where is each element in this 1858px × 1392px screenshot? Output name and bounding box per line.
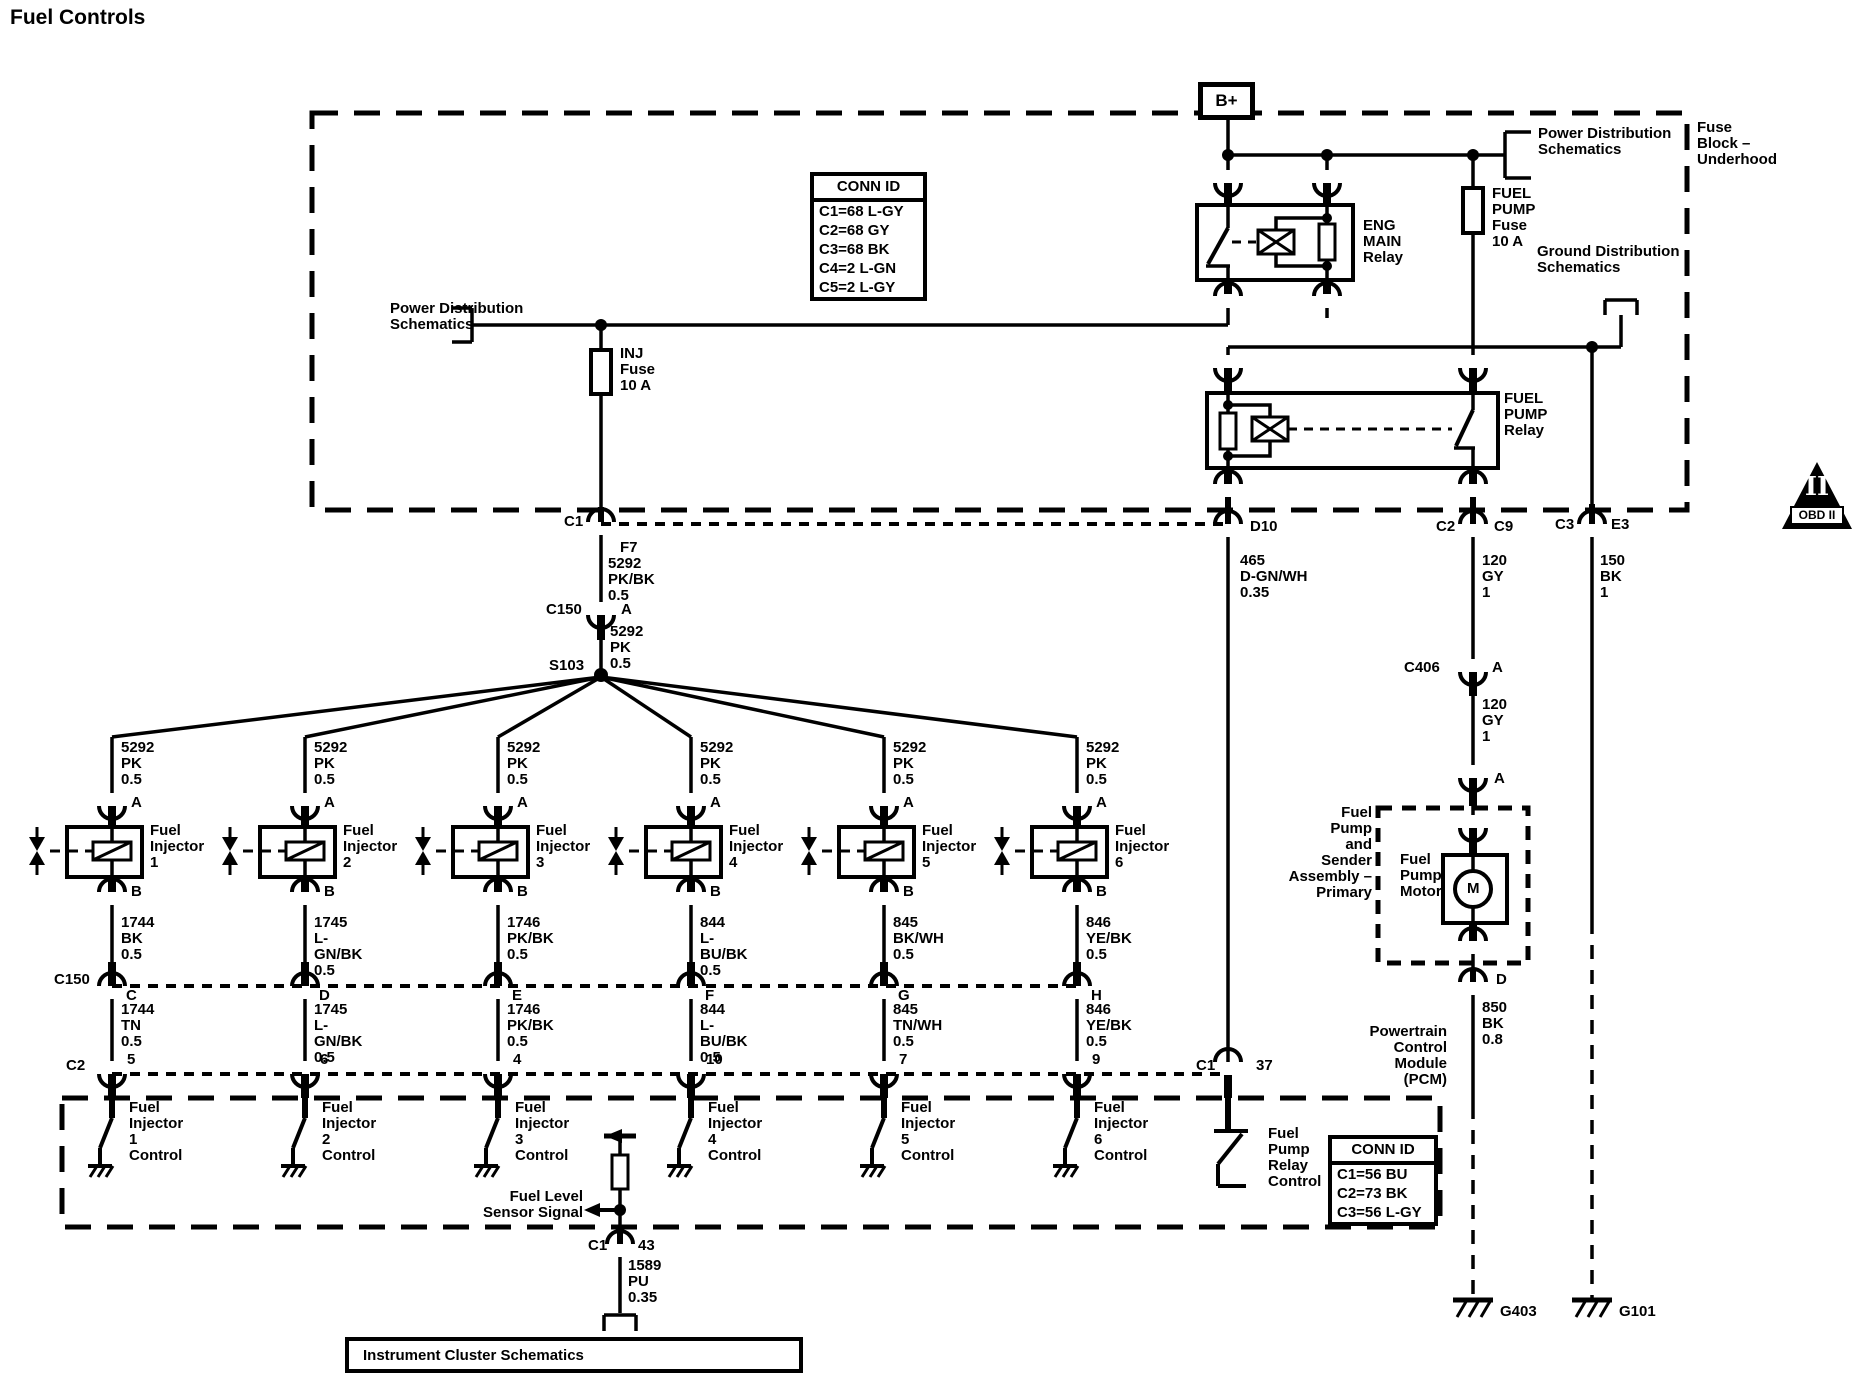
wire-120-label: 120 GY 1	[1482, 697, 1507, 745]
injector-name: Fuel Injector 2	[343, 823, 397, 871]
eng-main-relay-label: ENG MAIN Relay	[1363, 218, 1403, 266]
conn-id-row: C3=56 L-GY	[1332, 1203, 1434, 1222]
pin-f7-label: F7	[620, 540, 638, 556]
pin-label: 6	[320, 1052, 328, 1068]
pcm-c1-label: C1	[1196, 1058, 1215, 1074]
pcm-control-label: Fuel Injector 2 Control	[322, 1100, 376, 1164]
pin-label: B	[324, 884, 335, 900]
pin-label: A	[710, 795, 721, 811]
pin-label: B	[710, 884, 721, 900]
connector-c1-label: C1	[588, 1238, 607, 1254]
pin-label: B	[131, 884, 142, 900]
ground-g101-label: G101	[1619, 1304, 1656, 1320]
pin-c9-label: C9	[1494, 519, 1513, 535]
pin-label: 4	[513, 1052, 521, 1068]
wire-5292-pk-label: 5292 PK 0.5	[610, 624, 643, 672]
pin-d10-label: D10	[1250, 519, 1278, 535]
conn-id-title: CONN ID	[814, 176, 923, 202]
fuse-block-label: Fuse Block – Underhood	[1697, 120, 1777, 168]
wire-465-label: 465 D-GN/WH 0.35	[1240, 553, 1308, 601]
conn-id-row: C2=73 BK	[1332, 1184, 1434, 1203]
connector-c150-label: C150	[546, 602, 582, 618]
page-title: Fuel Controls	[10, 6, 145, 30]
injector-name: Fuel Injector 3	[536, 823, 590, 871]
fuse-block-conn-id-box: CONN ID C1=68 L-GY C2=68 GY C3=68 BK C4=…	[810, 172, 927, 301]
pcm-control-label: Fuel Injector 3 Control	[515, 1100, 569, 1164]
obd2-numeral: II	[1800, 472, 1834, 502]
pin-label: A	[131, 795, 142, 811]
pin-label: A	[517, 795, 528, 811]
fuel-pump-motor-label: Fuel Pump Motor	[1400, 852, 1442, 900]
fuel-pump-fuse-branch	[1460, 155, 1486, 393]
wire-label: 845 TN/WH 0.5	[893, 1002, 942, 1050]
injector-name: Fuel Injector 4	[729, 823, 783, 871]
ground-dist-label: Ground Distribution Schematics	[1537, 244, 1679, 276]
injector-name: Fuel Injector 1	[150, 823, 204, 871]
wire-label: 5292 PK 0.5	[893, 740, 926, 788]
ground-g403-label: G403	[1500, 1304, 1537, 1320]
wire-850-label: 850 BK 0.8	[1482, 1000, 1507, 1048]
connector-row-lines	[112, 524, 1228, 1074]
inj-fuse-branch	[112, 325, 1077, 737]
power-dist-right-label: Power Distribution Schematics	[1538, 126, 1671, 158]
wire-label: 1744 BK 0.5	[121, 915, 154, 963]
connector-c406-label: C406	[1404, 660, 1440, 676]
pcm-conn-id-box: CONN ID C1=56 BU C2=73 BK C3=56 L-GY	[1328, 1135, 1438, 1226]
wire-label: 5292 PK 0.5	[1086, 740, 1119, 788]
wire-label: 1746 PK/BK 0.5	[507, 1002, 554, 1050]
conn-id-row: C4=2 L-GN	[814, 259, 923, 278]
pin-label: A	[1096, 795, 1107, 811]
wire-label: 1744 TN 0.5	[121, 1002, 154, 1050]
pin-label: B	[517, 884, 528, 900]
pcm-control-label: Fuel Injector 4 Control	[708, 1100, 762, 1164]
splice-s103-label: S103	[549, 658, 584, 674]
pin-label: 10	[706, 1052, 723, 1068]
wire-label: 1745 L-GN/BK 0.5	[314, 915, 362, 979]
pin-a-label: A	[1494, 771, 1505, 787]
pin-37-label: 37	[1256, 1058, 1273, 1074]
wiring-svg	[0, 0, 1858, 1392]
obd2-label: OBD II	[1790, 506, 1844, 525]
wire-150-label: 150 BK 1	[1600, 553, 1625, 601]
battery-feed-box: B+	[1198, 82, 1255, 120]
wire-label: 5292 PK 0.5	[314, 740, 347, 788]
fuel-pump-relay-symbol	[1207, 393, 1498, 468]
wire-label: 846 YE/BK 0.5	[1086, 1002, 1132, 1050]
injector-name: Fuel Injector 6	[1115, 823, 1169, 871]
pin-label: A	[903, 795, 914, 811]
inj-fuse-label: INJ Fuse 10 A	[620, 346, 655, 394]
fuel-level-signal-label: Fuel Level Sensor Signal	[460, 1189, 583, 1221]
pin-label: B	[903, 884, 914, 900]
wire-label: 1746 PK/BK 0.5	[507, 915, 554, 963]
pin-label: B	[1096, 884, 1107, 900]
fuel-pump-assembly-label: Fuel Pump and Sender Assembly – Primary	[1252, 805, 1372, 901]
motor-m-glyph: M	[1467, 881, 1480, 897]
connector-c1-label: C1	[564, 514, 583, 530]
fuel-pump-fuse-label: FUEL PUMP Fuse 10 A	[1492, 186, 1535, 250]
pin-a-label: A	[1492, 660, 1503, 676]
conn-id-row: C1=68 L-GY	[814, 202, 923, 221]
pcm-control-label: Fuel Injector 5 Control	[901, 1100, 955, 1164]
conn-id-row: C1=56 BU	[1332, 1165, 1434, 1184]
connector-c2-label: C2	[1436, 519, 1455, 535]
wire-label: 845 BK/WH 0.5	[893, 915, 944, 963]
power-dist-left-label: Power Distribution Schematics	[390, 301, 523, 333]
conn-id-row: C3=68 BK	[814, 240, 923, 259]
wire-label: 5292 PK 0.5	[507, 740, 540, 788]
wire-120-label: 120 GY 1	[1482, 553, 1507, 601]
fuel-controls-schematic: Fuel Controls B+ CONN ID C1=68 L-GY C2=6…	[0, 0, 1858, 1392]
wire-label: 844 L-BU/BK 0.5	[700, 915, 747, 979]
fuel-pump-relay-control-label: Fuel Pump Relay Control	[1268, 1126, 1321, 1190]
pin-d-label: D	[1496, 972, 1507, 988]
pin-label: 5	[127, 1052, 135, 1068]
pcm-control-label: Fuel Injector 1 Control	[129, 1100, 183, 1164]
connector-c3-label: C3	[1555, 517, 1574, 533]
wire-label: 5292 PK 0.5	[700, 740, 733, 788]
conn-id-row: C2=68 GY	[814, 221, 923, 240]
pcm-label: Powertrain Control Module (PCM)	[1330, 1024, 1447, 1088]
junction-dots	[595, 149, 1598, 461]
pcm-control-label: Fuel Injector 6 Control	[1094, 1100, 1148, 1164]
wire-1589-label: 1589 PU 0.35	[628, 1258, 661, 1306]
pin-a-label: A	[621, 602, 632, 618]
pin-43-label: 43	[638, 1238, 655, 1254]
wire-label: 846 YE/BK 0.5	[1086, 915, 1132, 963]
conn-id-row: C5=2 L-GY	[814, 278, 923, 297]
fuel-pump-relay-label: FUEL PUMP Relay	[1504, 391, 1547, 439]
c2-row-label: C2	[66, 1058, 85, 1074]
pin-e3-label: E3	[1611, 517, 1629, 533]
instrument-cluster-box: Instrument Cluster Schematics	[345, 1337, 803, 1373]
pin-label: 7	[899, 1052, 907, 1068]
conn-id-title: CONN ID	[1332, 1139, 1434, 1165]
injector-name: Fuel Injector 5	[922, 823, 976, 871]
pin-label: 9	[1092, 1052, 1100, 1068]
wire-label: 5292 PK 0.5	[121, 740, 154, 788]
pin-label: A	[324, 795, 335, 811]
c150-row-label: C150	[54, 972, 90, 988]
wire-5292-pkbk-label: 5292 PK/BK 0.5	[608, 556, 655, 604]
